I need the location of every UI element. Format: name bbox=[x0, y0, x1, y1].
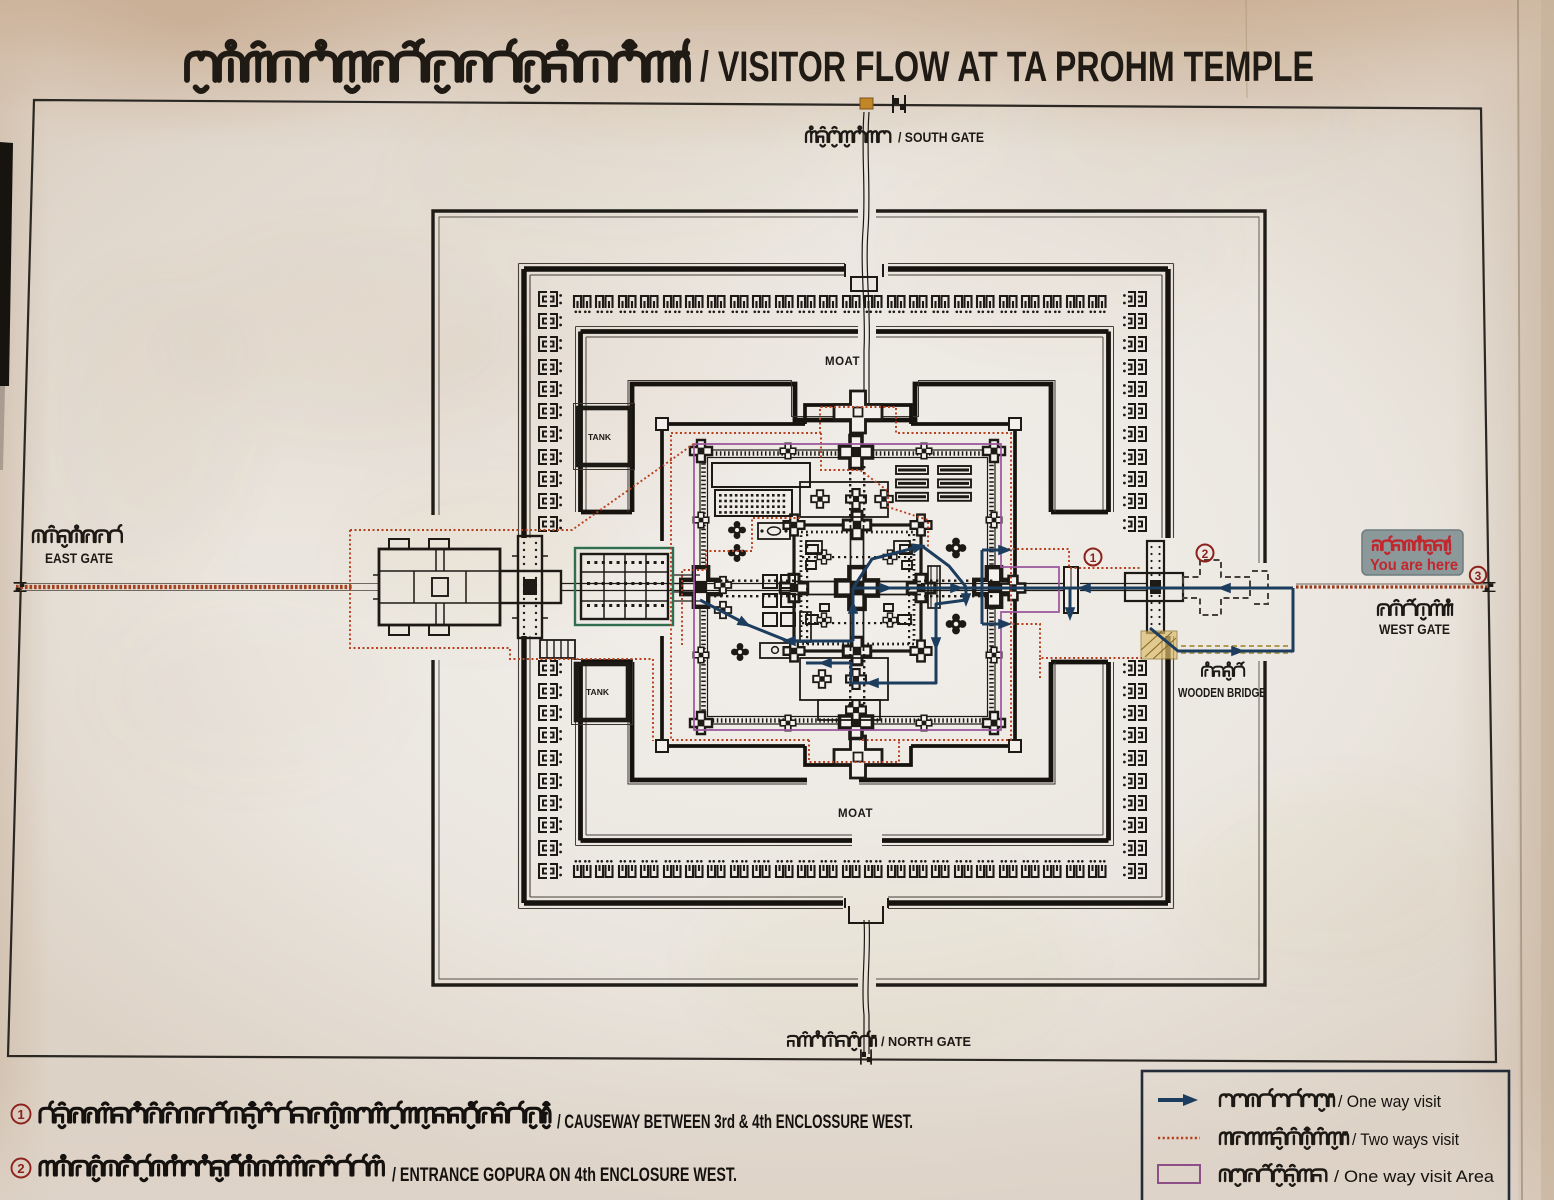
svg-text:3: 3 bbox=[1475, 569, 1482, 583]
svg-text:1: 1 bbox=[1090, 551, 1097, 565]
svg-text:/ SOUTH GATE: / SOUTH GATE bbox=[898, 129, 984, 145]
svg-text:/ ENTRANCE GOPURA ON 4th ENCLO: / ENTRANCE GOPURA ON 4th ENCLOSURE WEST. bbox=[392, 1164, 737, 1186]
svg-text:WEST GATE: WEST GATE bbox=[1379, 621, 1450, 637]
svg-text:1: 1 bbox=[17, 1107, 24, 1122]
svg-text:/ One way visit: / One way visit bbox=[1338, 1092, 1441, 1111]
svg-text:EAST GATE: EAST GATE bbox=[45, 550, 113, 566]
svg-text:/ VISITOR FLOW AT TA PROHM TEM: / VISITOR FLOW AT TA PROHM TEMPLE bbox=[700, 43, 1314, 91]
svg-text:/ One way visit Area: / One way visit Area bbox=[1334, 1167, 1495, 1186]
svg-text:WOODEN BRIDGE: WOODEN BRIDGE bbox=[1178, 686, 1266, 700]
svg-text:/ CAUSEWAY BETWEEN 3rd & 4th E: / CAUSEWAY BETWEEN 3rd & 4th ENCLOSSURE … bbox=[557, 1111, 913, 1133]
svg-text:MOAT: MOAT bbox=[838, 808, 873, 820]
svg-text:2: 2 bbox=[17, 1161, 24, 1176]
svg-text:You are here: You are here bbox=[1370, 557, 1458, 574]
svg-text:MOAT: MOAT bbox=[825, 356, 860, 368]
svg-text:2: 2 bbox=[1202, 547, 1209, 561]
svg-text:TANK: TANK bbox=[586, 687, 610, 697]
svg-text:/ NORTH GATE: / NORTH GATE bbox=[881, 1034, 971, 1049]
svg-text:TANK: TANK bbox=[588, 432, 612, 442]
svg-text:/ Two ways visit: / Two ways visit bbox=[1352, 1130, 1459, 1149]
